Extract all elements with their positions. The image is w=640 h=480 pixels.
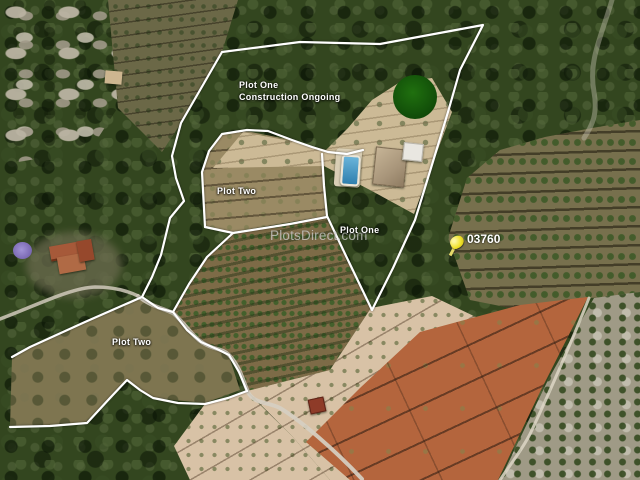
map-pin-icon[interactable] — [446, 234, 468, 260]
stone-hut — [104, 70, 122, 84]
green-status-circle — [393, 75, 437, 119]
jacaranda-tree — [13, 242, 32, 259]
label-plot-one-line2: Construction Ongoing — [239, 92, 340, 102]
label-plot-one-mid: Plot One — [340, 225, 379, 235]
pin-head — [448, 233, 466, 250]
villa-annex — [402, 142, 424, 162]
reference-number: 03760 — [467, 232, 500, 246]
satellite-map[interactable]: PlotsDirect.com Plot One Construction On… — [0, 0, 640, 480]
label-plot-two-upper: Plot Two — [217, 186, 256, 196]
label-plot-one-line1: Plot One — [239, 80, 278, 90]
swimming-pool — [340, 154, 361, 186]
label-plot-two-lower: Plot Two — [112, 337, 151, 347]
